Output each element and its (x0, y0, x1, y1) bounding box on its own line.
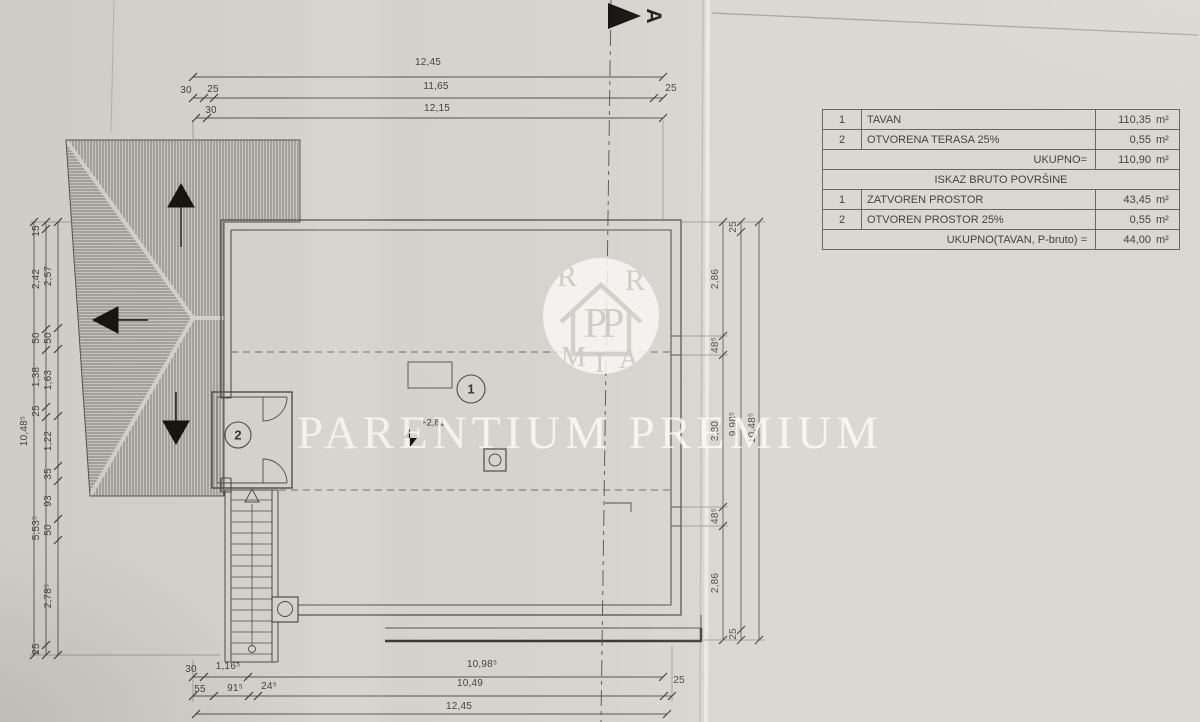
unit: m² (1156, 214, 1174, 226)
dim-label: 55 (194, 685, 206, 695)
dim-label: 1,22 (44, 431, 54, 451)
area-table: 1 TAVAN 110,35m² 2 OTVORENA TERASA 25% 0… (822, 110, 1180, 250)
dim-label: 10,98⁵ (467, 660, 497, 670)
unit: m² (1156, 154, 1174, 166)
logo-ring-letter: A (619, 344, 639, 374)
dim-label: 50 (32, 332, 42, 344)
row-number: 2 (822, 209, 862, 230)
row-value: 44,00m² (1095, 229, 1180, 250)
section-header-label: ISKAZ BRUTO POVRŠINE (822, 169, 1180, 190)
stairs (225, 489, 298, 662)
unit: m² (1156, 114, 1174, 126)
table-row: 1 ZATVOREN PROSTOR 43,45m² (822, 189, 1180, 210)
dim-label: 30 (185, 665, 197, 675)
dim-label: 5,53⁵ (32, 516, 42, 541)
dim-label: 50 (44, 332, 54, 344)
dim-label: 93 (44, 495, 54, 507)
value: 110,35 (1101, 114, 1151, 126)
row-value: 110,90m² (1095, 149, 1180, 170)
watermark-logo: R R M I A PP (543, 258, 659, 374)
dim-label: 25 (673, 676, 685, 686)
dim-label: 25 (32, 643, 42, 655)
dim-label: 2,42 (32, 269, 42, 289)
table-row-total: UKUPNO= 110,90m² (822, 149, 1180, 170)
dim-label: 2,86 (711, 573, 721, 593)
dim-label: 15 (32, 225, 42, 237)
dim-label: 12,45 (415, 58, 441, 68)
dim-label: 25 (207, 85, 219, 95)
value: 44,00 (1101, 234, 1151, 246)
dim-label: 25 (665, 84, 677, 94)
logo-ring-letter: I (595, 348, 604, 374)
dim-label: 2,86 (711, 269, 721, 289)
dim-label: 25 (32, 405, 42, 417)
dim-label: 12,45 (446, 702, 472, 712)
row-label: UKUPNO(TAVAN, P-bruto) = (822, 229, 1096, 250)
dim-label: 35 (44, 468, 54, 480)
dim-label: 12,15 (424, 104, 450, 114)
dim-label: 48⁵ (711, 508, 721, 524)
row-number: 2 (822, 129, 862, 150)
row-value: 110,35m² (1095, 109, 1180, 130)
row-value: 0,55m² (1095, 129, 1180, 150)
row-label: TAVAN (861, 109, 1096, 130)
dim-label: 2,78⁵ (44, 584, 54, 609)
dim-label: 25 (729, 628, 739, 640)
dim-label: 10,49 (457, 679, 483, 689)
dim-label: 91⁵ (227, 684, 243, 694)
row-number: 1 (822, 109, 862, 130)
row-value: 0,55m² (1095, 209, 1180, 230)
dim-label: 24⁵ (261, 682, 277, 692)
row-label: OTVOREN PROSTOR 25% (861, 209, 1096, 230)
column-marker (272, 597, 298, 622)
section-letter: A (641, 8, 665, 23)
value: 43,45 (1101, 194, 1151, 206)
value: 110,90 (1101, 154, 1151, 166)
dim-label: 48⁵ (711, 337, 721, 353)
room1-number: 1 (467, 382, 474, 397)
room2-number: 2 (234, 428, 241, 443)
dim-label: 1,16⁵ (216, 662, 241, 672)
row-number: 1 (822, 189, 862, 210)
watermark-text: PARENTIUM PREMIUM (297, 406, 883, 460)
row-label: OTVORENA TERASA 25% (861, 129, 1096, 150)
dim-label: 30 (205, 106, 217, 116)
unit: m² (1156, 234, 1174, 246)
unit: m² (1156, 194, 1174, 206)
table-row: 2 OTVORENA TERASA 25% 0,55m² (822, 129, 1180, 150)
dim-label: 1,63 (44, 370, 54, 390)
logo-ring-letter: M (561, 342, 586, 374)
logo-ring-letter: R (625, 264, 645, 298)
table-row: 1 TAVAN 110,35m² (822, 109, 1180, 130)
section-arrow (608, 3, 641, 29)
table-row: 2 OTVOREN PROSTOR 25% 0,55m² (822, 209, 1180, 230)
dim-label: 2,57 (44, 266, 54, 286)
logo-ring-letter: R (557, 260, 577, 294)
logo-monogram: PP (584, 300, 619, 348)
scanned-floor-plan-page: 12,45 30 25 11,65 25 30 12,15 30 1,16⁵ 1… (0, 0, 1200, 722)
table-section-header: ISKAZ BRUTO POVRŠINE (822, 169, 1180, 190)
dim-label: 30 (180, 86, 192, 96)
dim-label: 25 (729, 221, 739, 233)
row-label: ZATVOREN PROSTOR (861, 189, 1096, 210)
dim-label: 11,65 (423, 82, 448, 92)
row-label: UKUPNO= (822, 149, 1096, 170)
row-value: 43,45m² (1095, 189, 1180, 210)
value: 0,55 (1101, 214, 1151, 226)
table-row-total: UKUPNO(TAVAN, P-bruto) = 44,00m² (822, 229, 1180, 250)
value: 0,55 (1101, 134, 1151, 146)
terrace-edge (385, 615, 701, 641)
dim-label: 10,48⁵ (20, 416, 30, 446)
unit: m² (1156, 134, 1174, 146)
dim-label: 1,38 (32, 367, 42, 387)
dim-label: 50 (44, 524, 54, 536)
